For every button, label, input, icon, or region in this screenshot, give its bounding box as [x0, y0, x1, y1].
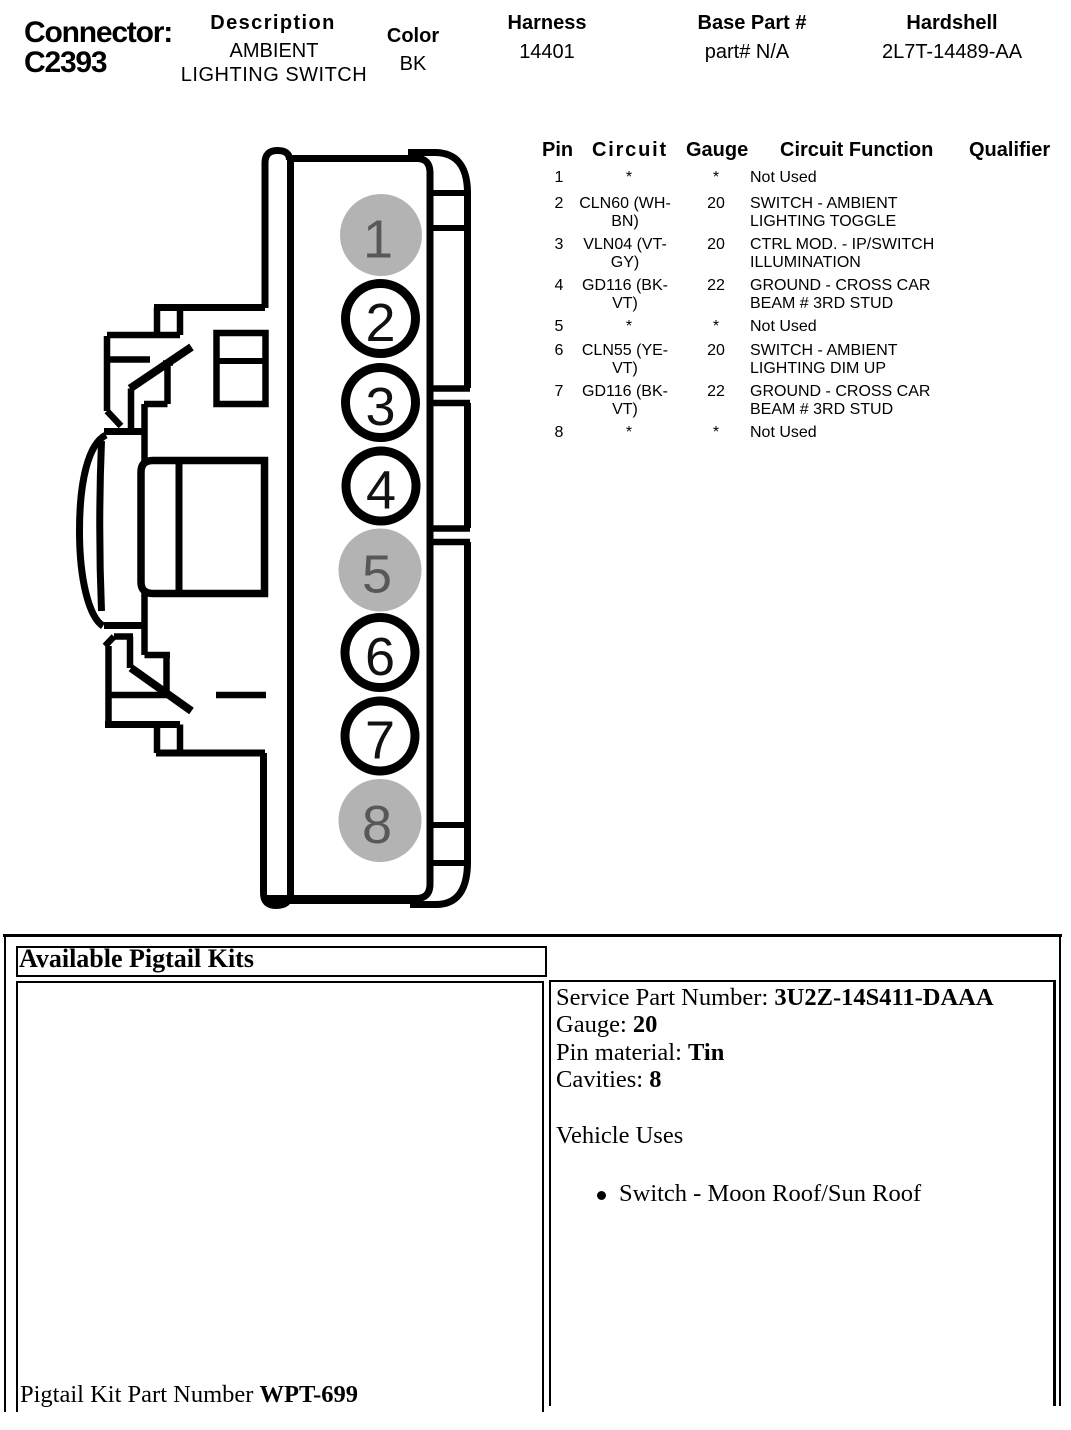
svg-text:6: 6 [365, 627, 395, 687]
svg-text:7: 7 [365, 711, 395, 771]
svg-text:8: 8 [362, 795, 392, 855]
svg-text:3: 3 [365, 377, 395, 437]
svg-text:5: 5 [362, 545, 392, 605]
svg-text:1: 1 [363, 210, 393, 270]
svg-text:2: 2 [365, 293, 395, 353]
svg-text:4: 4 [366, 461, 396, 521]
